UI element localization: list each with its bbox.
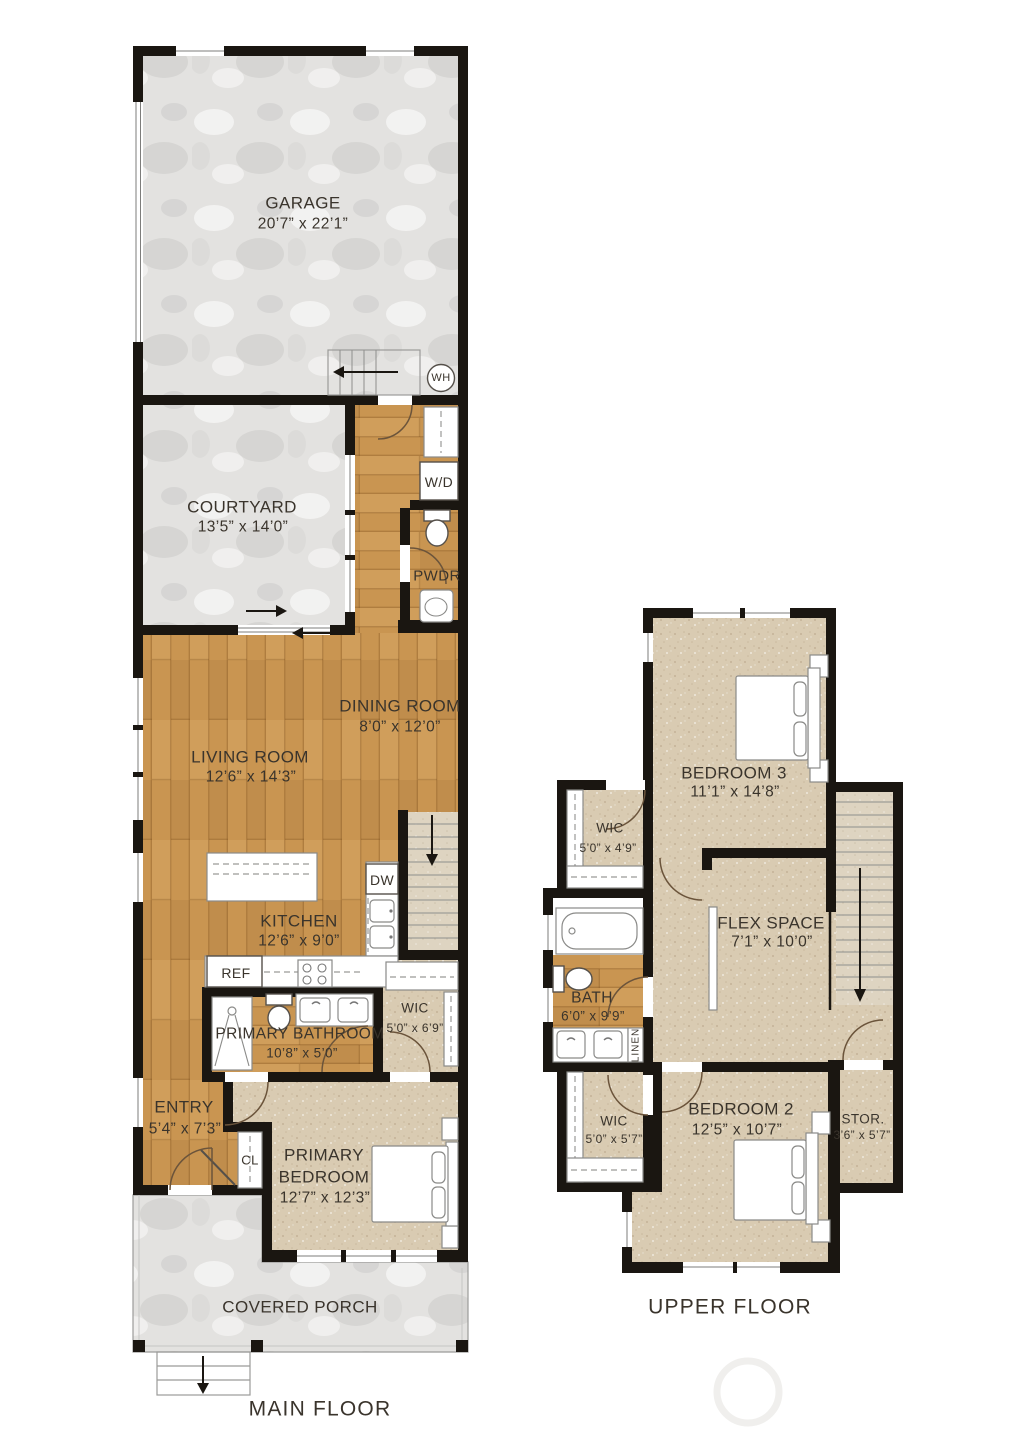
bedroom3-dims: 11’1” x 14’8”: [690, 784, 779, 801]
porch-post: [456, 1340, 468, 1352]
flex-space-label: FLEX SPACE: [717, 914, 825, 933]
coat-closet: [424, 407, 458, 457]
upper-toilet-tank: [553, 966, 564, 992]
kitchen-island: [207, 853, 317, 901]
storage-floor: [838, 1070, 893, 1183]
bed-pillow: [432, 1152, 445, 1183]
floorplan-drawing: WH W/D PWDR: [0, 0, 1018, 1439]
upper-floor-plan: LINEN BEDROOM 3 11’1” x 14’8” WIC 5’0” x…: [543, 608, 903, 1319]
steps-down-arrow-icon: [197, 1383, 209, 1394]
bed-pillow: [794, 722, 806, 756]
living-room-label: LIVING ROOM: [191, 748, 309, 767]
upper-sink-1: [557, 1031, 585, 1058]
bed-pillow: [432, 1187, 445, 1218]
storage-dims: 3’6” x 5’7”: [833, 1128, 890, 1142]
kitchen-dims: 12’6” x 9’0”: [258, 933, 339, 950]
bath-dims: 6’0” x 9’9”: [561, 1009, 625, 1024]
storage-label: STOR.: [841, 1112, 884, 1127]
kitchen-label: KITCHEN: [260, 912, 337, 931]
primary-bedroom-label-1: PRIMARY: [284, 1146, 364, 1165]
washer-dryer: W/D: [420, 462, 458, 500]
bed-pillow: [792, 1146, 804, 1178]
water-heater: WH: [428, 365, 455, 392]
bed-headboard: [806, 1133, 818, 1224]
bed-headboard: [808, 668, 820, 768]
washer-dryer-label: W/D: [425, 474, 453, 490]
powder-toilet-bowl: [426, 520, 448, 546]
courtyard-label: COURTYARD: [187, 498, 297, 517]
bed-pillow: [792, 1182, 804, 1214]
wic-dims: 5’0” x 6’9”: [386, 1021, 443, 1035]
garage-label: GARAGE: [265, 194, 340, 213]
courtyard-dims: 13’5” x 14’0”: [198, 519, 289, 536]
garage-door-opening: [133, 102, 143, 342]
water-heater-label: WH: [431, 372, 450, 384]
dining-room-dims: 8’0” x 12’0”: [359, 719, 440, 736]
primary-bedroom-dims: 12’7” x 12’3”: [280, 1190, 371, 1207]
upper-floor-title: UPPER FLOOR: [648, 1296, 812, 1319]
upper-toilet-bowl: [566, 968, 592, 990]
covered-porch-label: COVERED PORCH: [222, 1298, 377, 1317]
stove: [298, 960, 332, 987]
wic-lower-label: WIC: [600, 1114, 627, 1129]
bath-label: BATH: [571, 990, 613, 1007]
nightstand: [812, 1112, 830, 1134]
wic-upper-dims: 5’0” x 4’9”: [579, 841, 636, 855]
powder-room-label: PWDR: [413, 568, 460, 585]
dining-room-label: DINING ROOM: [339, 697, 461, 716]
garage-dims: 20’7” x 22’1”: [258, 216, 349, 233]
nightstand: [442, 1118, 458, 1140]
wic-lower-dims: 5’0” x 5’7”: [585, 1132, 642, 1146]
linen-label: LINEN: [631, 1028, 642, 1062]
entry-label: ENTRY: [154, 1098, 213, 1117]
bedroom2-dims: 12’5” x 10’7”: [692, 1122, 783, 1139]
floorplan-page: WH W/D PWDR: [0, 0, 1018, 1439]
upper-stairs-floor: [836, 792, 893, 1005]
porch-post: [251, 1340, 263, 1352]
bathroom-toilet-tank: [266, 994, 292, 1005]
main-floor-title: MAIN FLOOR: [249, 1398, 392, 1421]
bed-pillow: [794, 682, 806, 716]
dishwasher-label: DW: [370, 872, 395, 888]
primary-bathroom-label: PRIMARY BATHROOM: [215, 1026, 384, 1043]
wic-upper-label: WIC: [596, 821, 623, 836]
flex-space-dims: 7’1” x 10’0”: [731, 934, 812, 951]
main-floor-plan: WH W/D PWDR: [133, 46, 468, 1421]
porch-steps: [157, 1352, 250, 1395]
primary-bathroom-dims: 10’8” x 5’0”: [266, 1046, 338, 1061]
refrigerator-label: REF: [221, 965, 250, 981]
flex-railing: [709, 907, 717, 1010]
entry-dims: 5’4” x 7’3”: [149, 1121, 221, 1138]
porch-post: [133, 1340, 145, 1352]
bedroom3-label: BEDROOM 3: [681, 764, 787, 783]
corridor-floor: [143, 987, 202, 1195]
living-room-dims: 12’6” x 14’3”: [206, 769, 297, 786]
closet-label: CL: [241, 1153, 258, 1168]
watermark-circle: [717, 1361, 779, 1423]
bedroom2-label: BEDROOM 2: [688, 1100, 794, 1119]
wic-label: WIC: [401, 1001, 428, 1016]
nightstand: [442, 1226, 458, 1248]
primary-bedroom-label-2: BEDROOM: [279, 1168, 370, 1187]
upper-sink-2: [594, 1031, 622, 1058]
